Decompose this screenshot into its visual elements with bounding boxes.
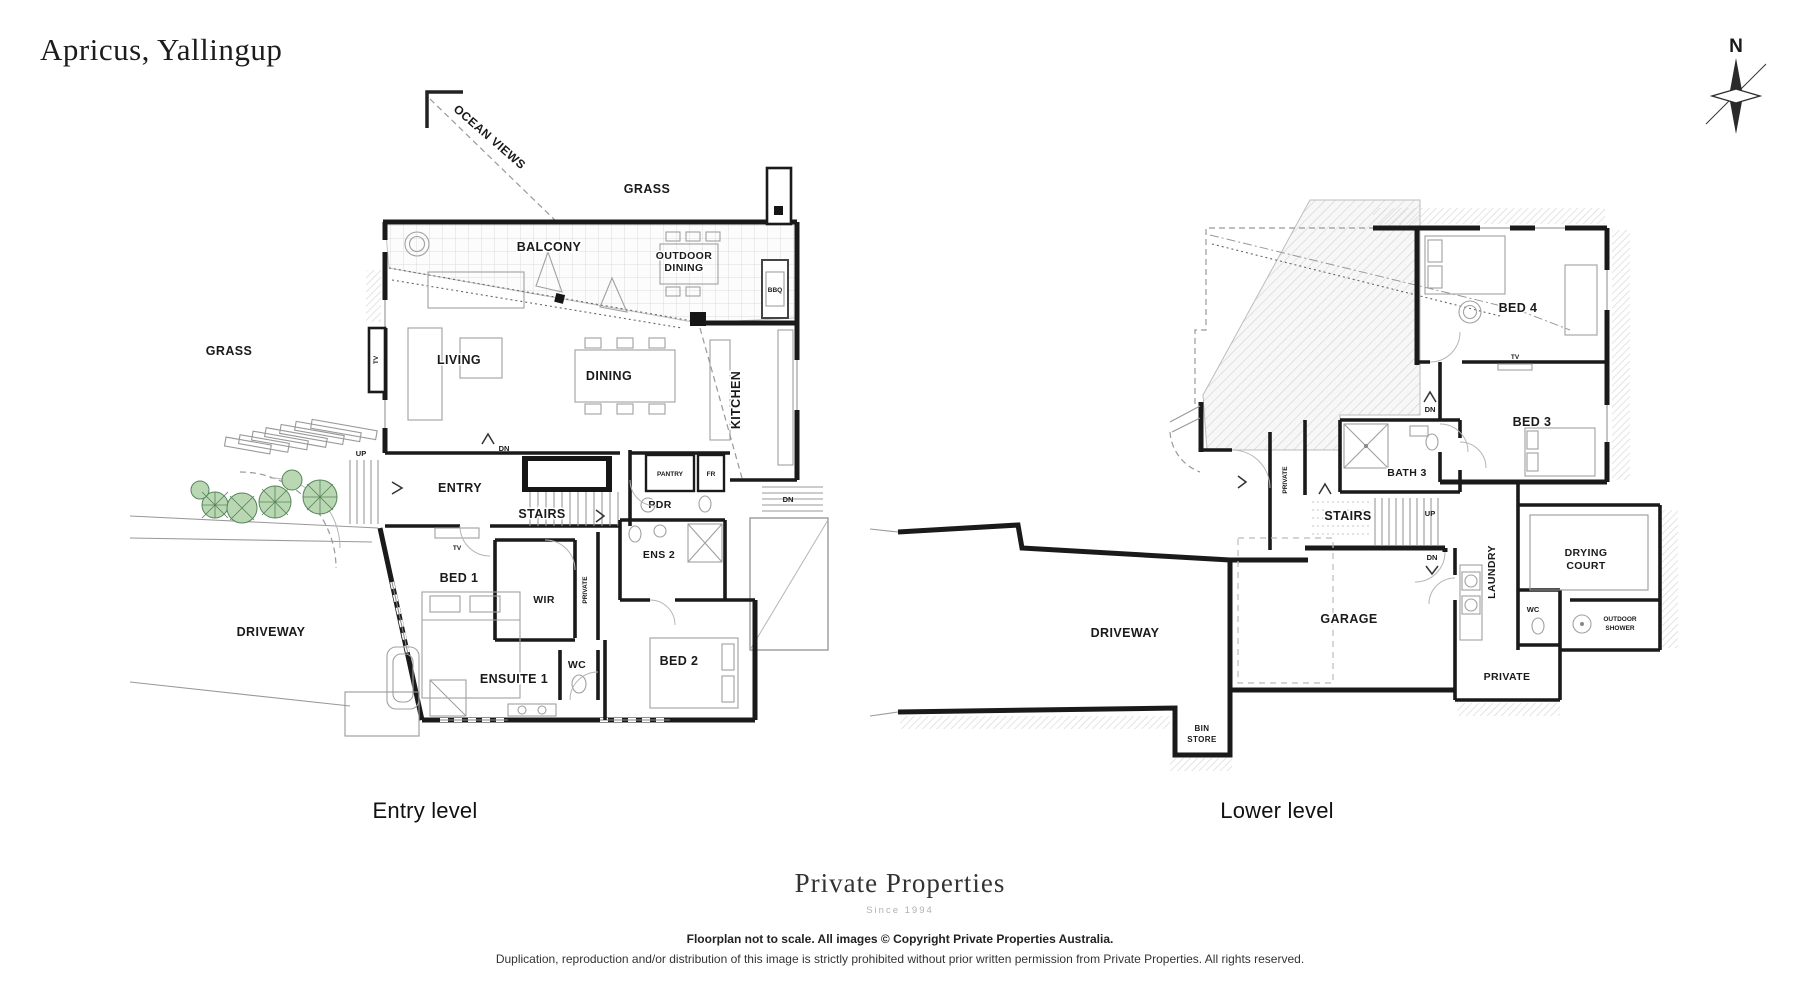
basin-icon — [654, 525, 666, 537]
door-arc — [1440, 424, 1468, 452]
dining-label: DINING — [586, 369, 632, 383]
entry-level-plan: TV BBQ DN PANTRY FR PDR ENTRY ST — [130, 160, 830, 740]
wall — [898, 525, 1230, 560]
shower-drain — [1580, 622, 1584, 626]
deck-step — [1170, 406, 1200, 432]
basin-icon — [518, 706, 526, 714]
pdr-label: PDR — [648, 499, 671, 511]
stairs-label: STAIRS — [518, 507, 565, 521]
dn-label: DN — [783, 495, 794, 504]
wall — [495, 540, 575, 640]
round-chair-inner — [1464, 306, 1477, 319]
chair-icon — [617, 338, 633, 348]
lower-level-caption: Lower level — [1220, 798, 1333, 824]
grass-label: GRASS — [206, 344, 252, 358]
window — [392, 582, 408, 654]
tv-label: TV — [1511, 354, 1520, 361]
door-arc — [1232, 450, 1270, 488]
ensuite1-label: ENSUITE 1 — [480, 672, 548, 686]
deck-hatch — [1203, 200, 1420, 450]
door-arc — [1430, 332, 1460, 362]
pillow-icon — [1428, 240, 1442, 262]
pillow-icon — [1428, 266, 1442, 288]
pillow-icon — [430, 596, 460, 612]
compass-east-west-icon — [1712, 89, 1760, 103]
laundry-label: LAUNDRY — [1486, 545, 1498, 599]
bath3-label: BATH 3 — [1387, 467, 1427, 479]
bin-store-label: BIN — [1195, 724, 1210, 733]
outdoor-shower-label: OUTDOOR — [1603, 616, 1637, 623]
basin-icon — [538, 706, 546, 714]
floorplan-page: Apricus, Yallingup OCEAN VIEWS N — [0, 0, 1800, 1000]
wc-label: WC — [1527, 605, 1540, 614]
site-hatch — [1457, 703, 1560, 716]
hall-arrow — [1238, 476, 1246, 488]
gate-swing — [1170, 432, 1200, 472]
page-title: Apricus, Yallingup — [40, 32, 282, 68]
bed-icon — [1525, 428, 1595, 476]
chair-icon — [649, 338, 665, 348]
private-label: PRIVATE — [582, 576, 589, 604]
private-hall-label: PRIVATE — [1282, 466, 1289, 494]
dn-arrow — [1424, 392, 1436, 402]
toilet-icon — [1532, 618, 1544, 634]
shower-glass — [688, 524, 722, 562]
wir-label: WIR — [533, 594, 555, 606]
north-compass: N — [1692, 30, 1784, 145]
stair-treads — [1375, 498, 1438, 545]
balcony-label: BALCONY — [517, 240, 582, 254]
pillow-icon — [1527, 431, 1538, 449]
driveway-label: DRIVEWAY — [1091, 626, 1160, 640]
door-arc — [650, 600, 675, 625]
pad — [345, 692, 419, 736]
dn-label: DN — [499, 444, 510, 453]
bed4-label: BED 4 — [1499, 301, 1538, 315]
door-arc — [1429, 578, 1455, 604]
wc-label: WC — [568, 659, 586, 671]
compass-n-label: N — [1729, 36, 1743, 57]
legal-line-2: Duplication, reproduction and/or distrib… — [0, 952, 1800, 966]
laundry-bench — [1460, 565, 1482, 640]
tv-label: TV — [373, 355, 380, 364]
ens2-label: ENS 2 — [643, 549, 675, 561]
stairs-label: STAIRS — [1324, 509, 1371, 523]
chair-icon — [585, 404, 601, 414]
brand-logo-text: Private Properties — [0, 868, 1800, 899]
private-room-label: PRIVATE — [1484, 671, 1531, 683]
driveway-edge — [870, 529, 898, 716]
legal-line-1: Floorplan not to scale. All images © Cop… — [0, 932, 1800, 946]
door-arc — [570, 672, 598, 700]
stepping-stones — [224, 419, 377, 454]
site-hatch — [900, 716, 1170, 729]
corner-post — [690, 312, 706, 326]
bin-store-label: STORE — [1187, 735, 1217, 744]
tv-unit — [435, 528, 479, 538]
bed2-label: BED 2 — [660, 654, 699, 668]
bed1-label: BED 1 — [440, 571, 479, 585]
up-label: UP — [356, 449, 366, 458]
driveway-label: DRIVEWAY — [237, 625, 306, 639]
chair-icon — [617, 404, 633, 414]
entry-label: ENTRY — [438, 481, 482, 495]
tv-label: TV — [453, 545, 462, 552]
up-label: UP — [1425, 509, 1435, 518]
outdoor-shower-label: SHOWER — [1605, 625, 1635, 632]
bed3-label: BED 3 — [1513, 415, 1552, 429]
dryer-drum — [1465, 599, 1477, 611]
site-hatch — [1170, 758, 1232, 771]
pillow-icon — [722, 676, 734, 702]
vanity-icon — [508, 704, 556, 716]
footer: Private Properties Since 1994 Floorplan … — [0, 868, 1800, 966]
drying-court-label: DRYING — [1565, 547, 1608, 559]
basin-icon — [1410, 426, 1428, 436]
door-arc — [545, 540, 575, 570]
driveway-edge — [130, 682, 350, 706]
drying-court-label: COURT — [1566, 560, 1606, 572]
brand-since: Since 1994 — [0, 905, 1800, 916]
washer-drum — [1465, 575, 1477, 587]
entry-arrow-right — [392, 482, 402, 494]
pantry-label: PANTRY — [657, 471, 684, 478]
bed-icon — [650, 638, 738, 708]
stair-landing-inner — [528, 461, 606, 487]
shower-drain — [1364, 444, 1368, 448]
toilet-icon — [572, 675, 586, 693]
sofa-icon — [1565, 265, 1597, 335]
stairs-arrow — [1319, 484, 1331, 494]
lower-level-plan: TV BED 4 BED 3 DN BATH 3 STAIRS U — [870, 180, 1700, 780]
pillow-icon — [1527, 453, 1538, 471]
stair-direction-arrow — [596, 510, 604, 522]
wall — [1518, 590, 1560, 645]
chimney — [767, 168, 791, 224]
site-hatch — [1612, 230, 1630, 480]
entry-steps — [350, 460, 378, 524]
chimney-flue — [774, 206, 783, 215]
site-hatch — [366, 270, 381, 322]
door-arc — [1460, 442, 1486, 468]
sofa-icon — [408, 328, 442, 420]
fr-label: FR — [707, 471, 716, 478]
garage-label: GARAGE — [1320, 612, 1377, 626]
outdoor-dining-label: DINING — [664, 262, 703, 274]
round-chair-icon — [1459, 301, 1481, 323]
door-arc — [460, 526, 490, 556]
pdr-toilet-icon — [699, 496, 711, 512]
dn-label: DN — [1427, 553, 1438, 562]
wall — [560, 640, 605, 720]
dn-label: DN — [1425, 405, 1436, 414]
kitchen-label: KITCHEN — [729, 371, 743, 429]
grass-label: GRASS — [624, 182, 670, 196]
chair-icon — [649, 404, 665, 414]
entry-level-caption: Entry level — [373, 798, 478, 824]
pillow-icon — [722, 644, 734, 670]
kitchen-bench — [778, 330, 793, 465]
entry-arrow-up — [482, 434, 494, 444]
trees — [191, 470, 337, 523]
living-label: LIVING — [437, 353, 481, 367]
bbq-label: BBQ — [768, 287, 782, 294]
outdoor-dining-label: OUTDOOR — [656, 250, 712, 262]
chair-icon — [585, 338, 601, 348]
tv-unit — [1498, 364, 1532, 370]
site-hatch — [1662, 510, 1678, 648]
bed-icon — [1425, 236, 1505, 294]
toilet-icon — [629, 526, 641, 542]
site-hatch — [1373, 208, 1605, 224]
